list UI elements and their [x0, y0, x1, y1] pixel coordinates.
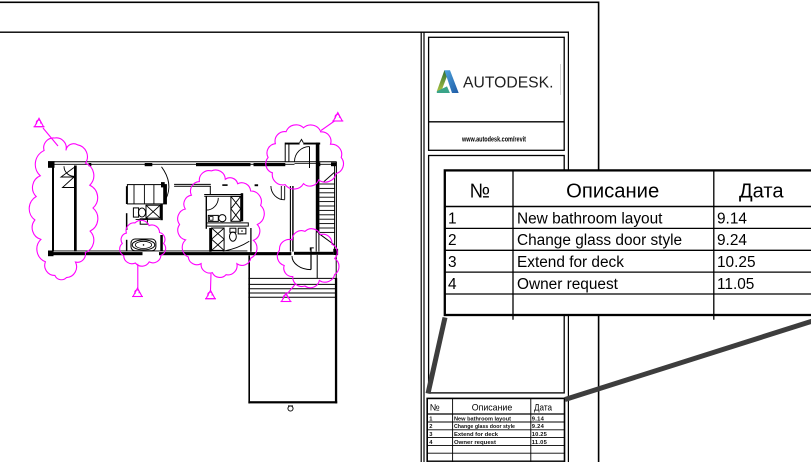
svg-text:Дата: Дата — [534, 403, 553, 413]
svg-text:9.14: 9.14 — [532, 416, 545, 422]
svg-text:9.24: 9.24 — [717, 232, 747, 249]
svg-text:1: 1 — [448, 210, 457, 227]
svg-text:New bathroom layout: New bathroom layout — [454, 416, 511, 422]
svg-text:Extend for deck: Extend for deck — [454, 432, 499, 438]
svg-text:2: 2 — [429, 424, 432, 430]
svg-text:2: 2 — [448, 232, 457, 249]
svg-text:Описание: Описание — [566, 181, 659, 203]
svg-text:4: 4 — [448, 276, 457, 293]
svg-text:№: № — [430, 403, 440, 413]
svg-text:Owner request: Owner request — [454, 440, 496, 446]
svg-text:10.25: 10.25 — [532, 432, 548, 438]
svg-text:10.25: 10.25 — [717, 254, 756, 271]
svg-text:Extend for deck: Extend for deck — [517, 254, 624, 271]
svg-text:11.05: 11.05 — [532, 440, 548, 446]
svg-text:9.24: 9.24 — [532, 424, 545, 430]
svg-text:AUTODESK.: AUTODESK. — [463, 75, 554, 92]
svg-text:www.autodesk.com/revit: www.autodesk.com/revit — [461, 135, 526, 144]
svg-text:Change glass door style: Change glass door style — [517, 232, 682, 249]
svg-text:3: 3 — [448, 254, 457, 271]
svg-text:Owner request: Owner request — [517, 276, 619, 293]
svg-text:9.14: 9.14 — [717, 210, 747, 227]
svg-text:№: № — [469, 181, 490, 203]
svg-text:Дата: Дата — [739, 181, 784, 203]
svg-text:New bathroom layout: New bathroom layout — [517, 210, 663, 227]
svg-text:Change glass door style: Change glass door style — [454, 424, 516, 430]
svg-text:11.05: 11.05 — [717, 276, 754, 293]
svg-text:Описание: Описание — [472, 403, 513, 413]
